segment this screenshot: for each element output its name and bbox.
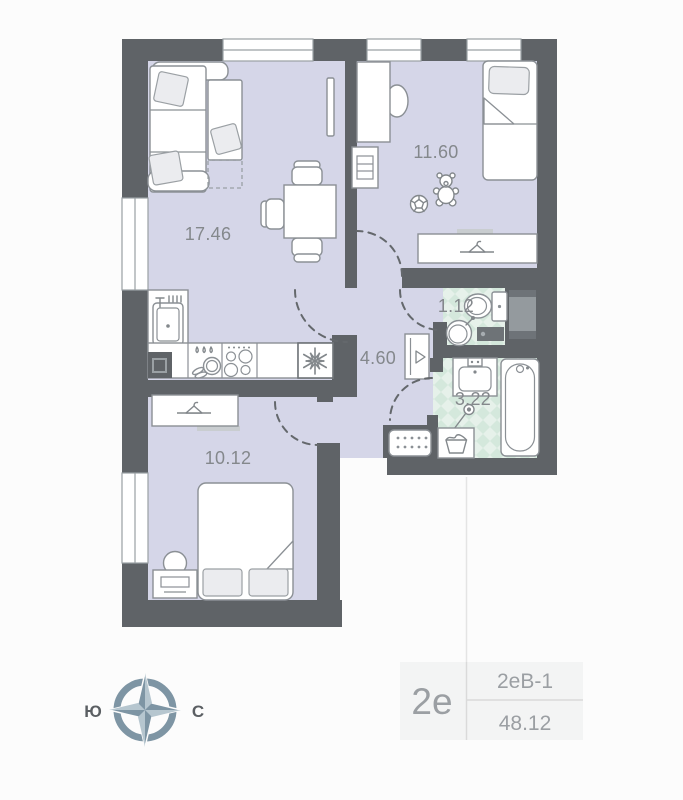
window-living-top — [223, 39, 313, 61]
window-living-left — [122, 198, 148, 290]
wc-area-label: 1.12 — [438, 296, 474, 316]
wall-bottom-left — [122, 600, 342, 627]
washing-machine-icon — [389, 430, 431, 456]
bathroom-area-label: 3.22 — [455, 389, 491, 409]
hallway-area-label: 4.60 — [360, 348, 396, 368]
wall-bedroom-right — [317, 443, 340, 627]
toy-ball-icon — [411, 196, 428, 213]
child-bedroom-area-label: 11.60 — [413, 142, 458, 162]
apartment-card: 2е 2еВ-1 48.12 — [400, 477, 583, 740]
wall-bath-left — [430, 358, 443, 372]
floorplan-drawing: 17.46 11.60 10.12 4.60 1.12 3.22 2е 2еВ-… — [0, 0, 683, 800]
window-childroom-2 — [467, 39, 521, 61]
bedroom-area-label: 10.12 — [205, 448, 252, 468]
wall-wc-bath-divider — [443, 345, 537, 358]
wall-right — [537, 39, 557, 475]
kitchen-sink-icon — [153, 296, 183, 345]
tv-icon — [327, 78, 334, 136]
living-room-area-label: 17.46 — [185, 224, 232, 244]
laundry-basket-icon — [438, 428, 474, 458]
floorplan-page: 17.46 11.60 10.12 4.60 1.12 3.22 2е 2еВ-… — [0, 0, 683, 800]
compass-north-label: С — [192, 702, 204, 721]
wardrobe-icon — [152, 395, 240, 431]
window-childroom-1 — [367, 39, 421, 61]
fridge-icon — [298, 343, 333, 378]
kitchen-column-overlay — [148, 352, 172, 378]
flat-type-label: 2е — [411, 681, 452, 722]
vent-shaft-detail — [509, 290, 536, 339]
wardrobe-icon — [418, 229, 537, 263]
shelf-icon — [352, 147, 378, 188]
wall-stub-bedroom-door — [317, 380, 333, 402]
desk-icon — [357, 62, 390, 142]
flat-code-label: 2еВ-1 — [497, 670, 553, 693]
compass-icon: Ю С — [84, 673, 204, 747]
double-bed-icon — [198, 483, 293, 600]
single-bed-icon — [483, 61, 537, 180]
bathtub-icon — [501, 359, 539, 456]
total-area-label: 48.12 — [499, 712, 552, 735]
mirror-console-icon — [405, 334, 429, 379]
window-bedroom-left — [122, 473, 148, 563]
wall-kitchen-hallway — [332, 335, 357, 397]
compass-south-label: Ю — [84, 702, 102, 721]
wall-bath-bottom — [387, 458, 557, 475]
wc-cistern-box — [477, 327, 504, 341]
